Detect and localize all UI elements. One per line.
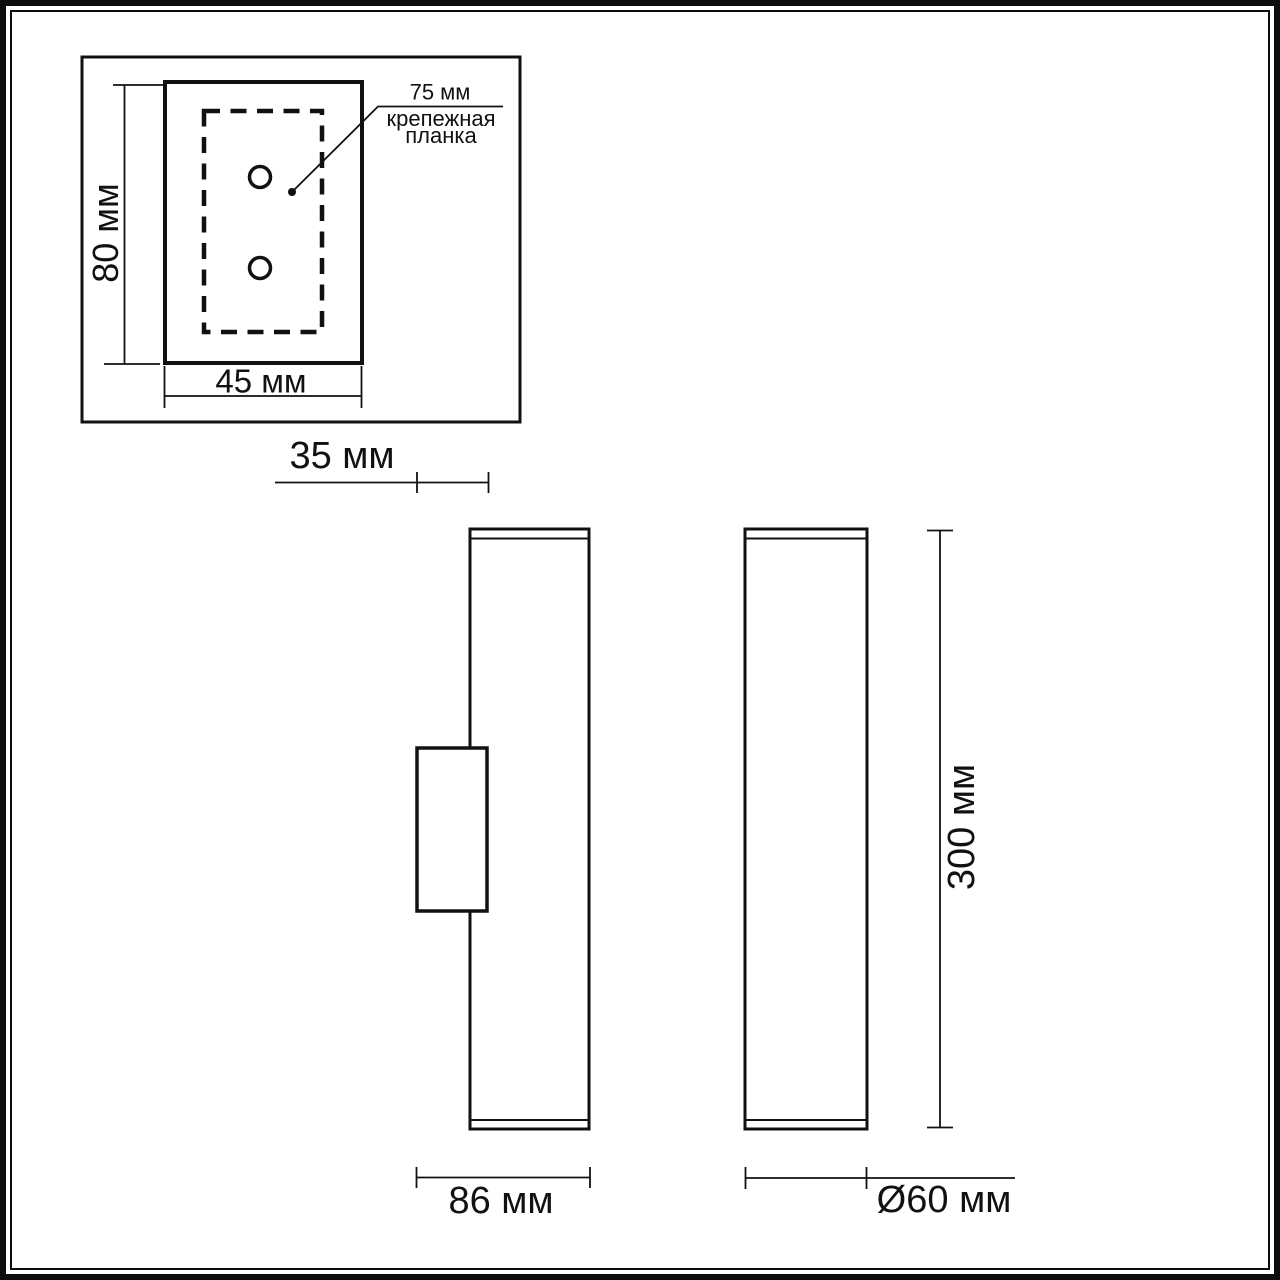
side-view-wall-bracket-outline: [417, 748, 487, 911]
depth-dimension-label: 86 мм: [448, 1182, 553, 1222]
drawing-canvas: 80 мм 45 мм 75 мм крепежная планка 35 мм…: [0, 0, 1280, 1280]
hole-spacing-dimension-label: 75 мм: [410, 80, 471, 103]
mounting-bracket-label: крепежная планка: [386, 111, 495, 144]
side-view: [416, 529, 590, 1188]
plate-height-dimension-label: 80 мм: [87, 183, 125, 283]
front-view-body-outline: [745, 529, 867, 1129]
diameter-dimension-label: Ø60 мм: [877, 1181, 1012, 1221]
mount-plate-outline: [165, 82, 362, 363]
plate-width-dimension-label: 45 мм: [215, 365, 306, 400]
height-dimension-label: 300 мм: [943, 764, 983, 890]
linework-svg: [0, 0, 1280, 1280]
wall-offset-dimension-label: 35 мм: [289, 437, 394, 477]
